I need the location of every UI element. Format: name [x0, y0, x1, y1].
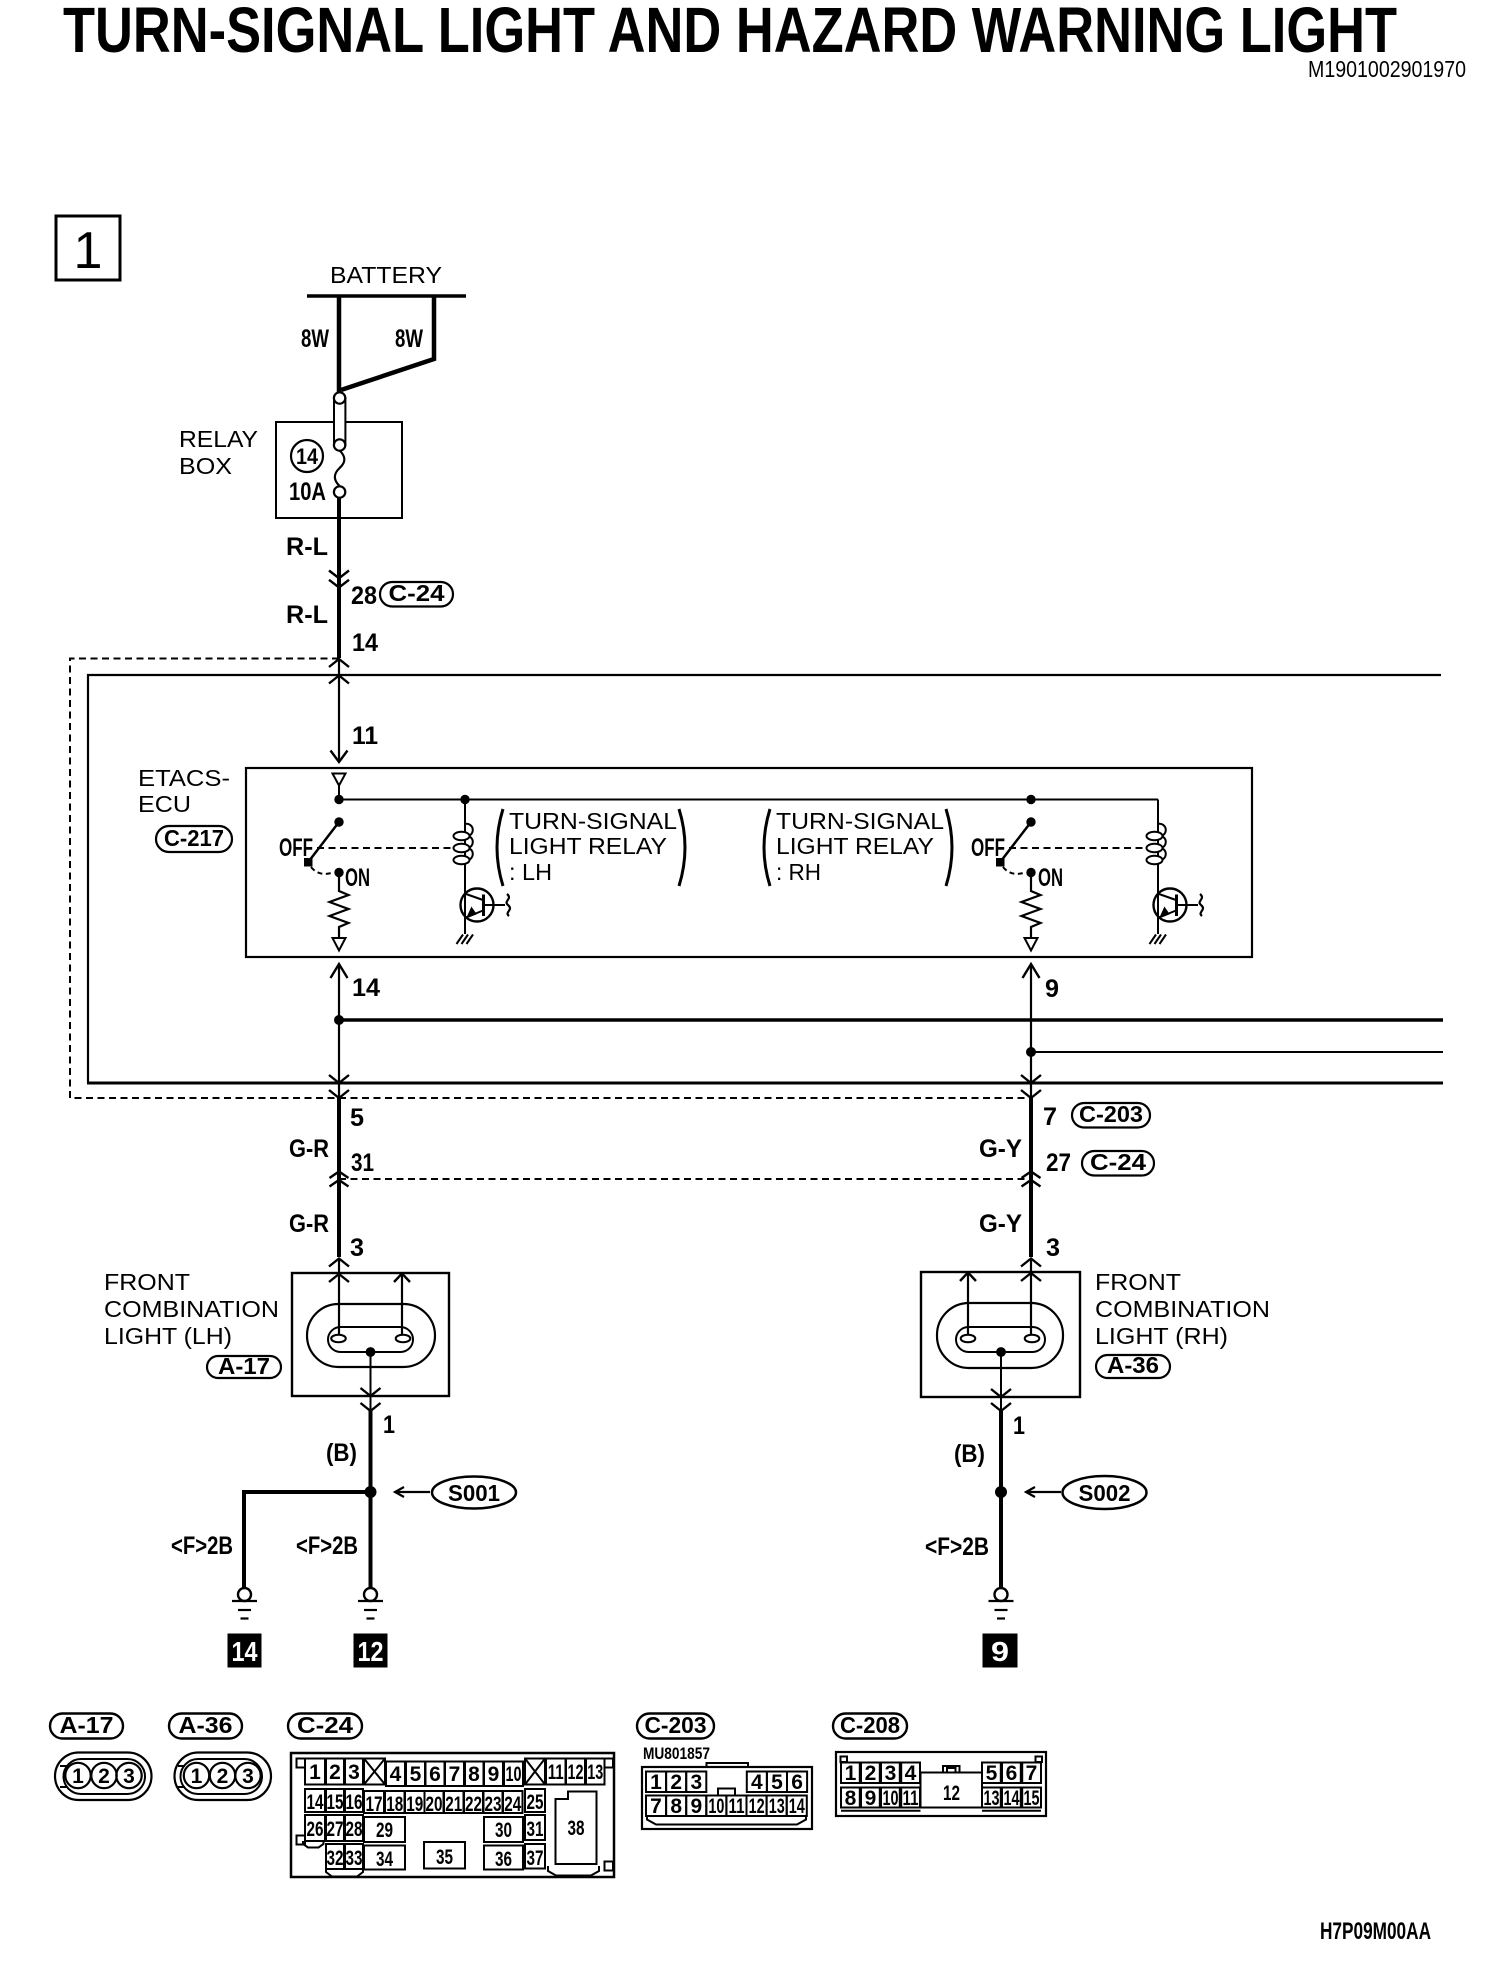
- svg-text:14: 14: [296, 444, 319, 469]
- svg-text:14: 14: [352, 974, 380, 1002]
- svg-text:13: 13: [587, 1761, 603, 1784]
- svg-text:7: 7: [650, 1795, 662, 1818]
- svg-text:8W: 8W: [395, 325, 423, 353]
- svg-text:22: 22: [465, 1793, 482, 1816]
- svg-text:11: 11: [729, 1795, 745, 1818]
- svg-text:ETACS-: ETACS-: [138, 765, 230, 791]
- svg-text:FRONT: FRONT: [1095, 1269, 1181, 1295]
- svg-text:G-R: G-R: [289, 1135, 329, 1163]
- svg-text:11: 11: [352, 722, 378, 750]
- svg-text:2: 2: [329, 1761, 341, 1784]
- svg-text:1: 1: [309, 1761, 321, 1784]
- svg-text:LIGHT RELAY: LIGHT RELAY: [776, 833, 934, 859]
- svg-text:9: 9: [690, 1795, 702, 1818]
- svg-text:21: 21: [445, 1793, 462, 1816]
- svg-text:16: 16: [346, 1791, 363, 1814]
- svg-text:6: 6: [791, 1771, 803, 1794]
- svg-text:<F>2B: <F>2B: [171, 1532, 233, 1560]
- svg-text:5: 5: [771, 1771, 783, 1794]
- svg-text:2: 2: [670, 1771, 682, 1794]
- svg-text:TURN-SIGNAL: TURN-SIGNAL: [776, 808, 944, 834]
- svg-text:24: 24: [504, 1793, 521, 1816]
- svg-text:10: 10: [506, 1763, 522, 1786]
- svg-text:8: 8: [845, 1787, 857, 1810]
- svg-text:1: 1: [72, 1765, 84, 1788]
- svg-text:14: 14: [352, 629, 378, 657]
- svg-text:COMBINATION: COMBINATION: [1095, 1296, 1270, 1322]
- svg-text:7: 7: [1026, 1762, 1038, 1785]
- svg-text:4: 4: [390, 1763, 402, 1786]
- svg-text:OFF: OFF: [279, 834, 313, 862]
- svg-text:27: 27: [327, 1818, 344, 1841]
- svg-text:13: 13: [984, 1787, 1000, 1810]
- svg-text:9: 9: [488, 1763, 500, 1786]
- svg-text:H7P09M00AA: H7P09M00AA: [1320, 1918, 1431, 1945]
- svg-text:LIGHT RELAY: LIGHT RELAY: [509, 833, 667, 859]
- svg-text:1: 1: [845, 1762, 857, 1785]
- svg-text:14: 14: [232, 1636, 258, 1667]
- svg-text:ON: ON: [345, 864, 370, 892]
- svg-text:8: 8: [468, 1763, 480, 1786]
- svg-text:R-L: R-L: [286, 533, 328, 561]
- svg-text:ON: ON: [1038, 864, 1063, 892]
- svg-text:10A: 10A: [289, 478, 326, 506]
- svg-text:30: 30: [495, 1819, 512, 1842]
- svg-text:25: 25: [527, 1791, 544, 1814]
- svg-text:34: 34: [376, 1848, 393, 1871]
- svg-text:1: 1: [191, 1765, 203, 1788]
- svg-text:15: 15: [327, 1791, 344, 1814]
- svg-text:29: 29: [376, 1819, 393, 1842]
- svg-text:5: 5: [410, 1763, 422, 1786]
- svg-text:BOX: BOX: [179, 453, 232, 479]
- svg-text:C-24: C-24: [297, 1712, 353, 1738]
- svg-text:3: 3: [242, 1765, 254, 1788]
- svg-text:3: 3: [885, 1762, 897, 1785]
- svg-text:20: 20: [426, 1793, 443, 1816]
- svg-text:G-R: G-R: [289, 1210, 329, 1238]
- svg-text:13: 13: [769, 1795, 785, 1818]
- svg-text:3: 3: [1046, 1234, 1060, 1262]
- svg-text:12: 12: [749, 1795, 765, 1818]
- svg-text:TURN-SIGNAL LIGHT AND HAZARD W: TURN-SIGNAL LIGHT AND HAZARD WARNING LIG…: [63, 0, 1397, 66]
- svg-text:C-24: C-24: [389, 580, 445, 606]
- svg-text:(B): (B): [326, 1439, 357, 1467]
- svg-text:9: 9: [1045, 975, 1059, 1003]
- svg-text:9: 9: [991, 1636, 1009, 1667]
- svg-text:1: 1: [1013, 1412, 1025, 1440]
- svg-text:1: 1: [74, 222, 103, 280]
- svg-text:5: 5: [986, 1762, 998, 1785]
- svg-text:1: 1: [650, 1771, 662, 1794]
- svg-text:15: 15: [1024, 1787, 1040, 1810]
- svg-text:26: 26: [307, 1818, 324, 1841]
- svg-text:G-Y: G-Y: [979, 1210, 1022, 1238]
- svg-text:2: 2: [865, 1762, 877, 1785]
- svg-text:31: 31: [351, 1149, 374, 1177]
- svg-text:2: 2: [98, 1765, 110, 1788]
- svg-text:BATTERY: BATTERY: [330, 262, 442, 288]
- svg-text:12: 12: [943, 1782, 960, 1805]
- svg-text:35: 35: [436, 1846, 453, 1869]
- svg-text:FRONT: FRONT: [104, 1269, 190, 1295]
- svg-text:32: 32: [327, 1847, 344, 1870]
- svg-text:LIGHT (RH): LIGHT (RH): [1095, 1323, 1228, 1349]
- svg-text:3: 3: [348, 1761, 360, 1784]
- svg-text:5: 5: [350, 1104, 364, 1132]
- svg-text:ECU: ECU: [138, 791, 191, 817]
- svg-text:(B): (B): [954, 1440, 985, 1468]
- svg-text:14: 14: [1004, 1787, 1020, 1810]
- svg-text:RELAY: RELAY: [179, 426, 258, 452]
- svg-text:11: 11: [548, 1761, 564, 1784]
- svg-text:A-36: A-36: [1107, 1352, 1159, 1378]
- svg-text:33: 33: [346, 1847, 363, 1870]
- svg-text:8: 8: [670, 1795, 682, 1818]
- svg-text:11: 11: [903, 1787, 919, 1810]
- svg-text:17: 17: [366, 1793, 383, 1816]
- svg-text:S002: S002: [1079, 1480, 1131, 1506]
- svg-text:7: 7: [1043, 1103, 1057, 1131]
- svg-text:3: 3: [690, 1771, 702, 1794]
- svg-text:C-217: C-217: [164, 825, 224, 851]
- svg-text:10: 10: [883, 1787, 899, 1810]
- svg-text:14: 14: [789, 1795, 805, 1818]
- svg-text:M1901002901970: M1901002901970: [1308, 56, 1466, 82]
- svg-text:9: 9: [865, 1787, 877, 1810]
- svg-text:: LH: : LH: [509, 859, 552, 885]
- svg-text:27: 27: [1046, 1149, 1071, 1177]
- svg-text:C-208: C-208: [840, 1712, 900, 1738]
- svg-text:14: 14: [307, 1791, 324, 1814]
- svg-text:37: 37: [527, 1847, 544, 1870]
- svg-text:12: 12: [568, 1761, 584, 1784]
- svg-text:<F>2B: <F>2B: [296, 1532, 358, 1560]
- svg-text:3: 3: [123, 1765, 135, 1788]
- svg-text:6: 6: [429, 1763, 441, 1786]
- svg-text:R-L: R-L: [286, 601, 328, 629]
- svg-text:6: 6: [1006, 1762, 1018, 1785]
- svg-text:A-17: A-17: [60, 1712, 114, 1738]
- svg-text:A-36: A-36: [179, 1712, 233, 1738]
- svg-text:4: 4: [905, 1762, 917, 1785]
- svg-text:<F>2B: <F>2B: [925, 1533, 989, 1561]
- svg-text:TURN-SIGNAL: TURN-SIGNAL: [509, 808, 677, 834]
- svg-text:31: 31: [527, 1818, 544, 1841]
- svg-text:28: 28: [346, 1818, 363, 1841]
- svg-text:36: 36: [495, 1848, 512, 1871]
- svg-text:23: 23: [485, 1793, 502, 1816]
- svg-text:A-17: A-17: [218, 1353, 270, 1379]
- svg-text:38: 38: [568, 1817, 585, 1840]
- svg-text:C-203: C-203: [645, 1712, 707, 1738]
- svg-text:OFF: OFF: [971, 834, 1005, 862]
- svg-text:19: 19: [406, 1793, 423, 1816]
- svg-text:S001: S001: [448, 1480, 500, 1506]
- svg-text:2: 2: [217, 1765, 229, 1788]
- svg-text:3: 3: [350, 1234, 364, 1262]
- svg-text:LIGHT (LH): LIGHT (LH): [104, 1323, 232, 1349]
- svg-text:12: 12: [358, 1636, 384, 1667]
- svg-text:10: 10: [708, 1795, 724, 1818]
- svg-text:8W: 8W: [301, 325, 329, 353]
- svg-text:C-24: C-24: [1090, 1149, 1146, 1175]
- svg-text:COMBINATION: COMBINATION: [104, 1296, 279, 1322]
- svg-text:1: 1: [383, 1411, 395, 1439]
- svg-text:G-Y: G-Y: [979, 1135, 1022, 1163]
- svg-text:: RH: : RH: [776, 859, 821, 885]
- svg-text:28: 28: [351, 582, 377, 610]
- svg-text:4: 4: [751, 1771, 763, 1794]
- svg-text:18: 18: [386, 1793, 403, 1816]
- svg-text:C-203: C-203: [1079, 1101, 1143, 1127]
- svg-text:MU801857: MU801857: [643, 1744, 710, 1763]
- svg-text:7: 7: [449, 1763, 461, 1786]
